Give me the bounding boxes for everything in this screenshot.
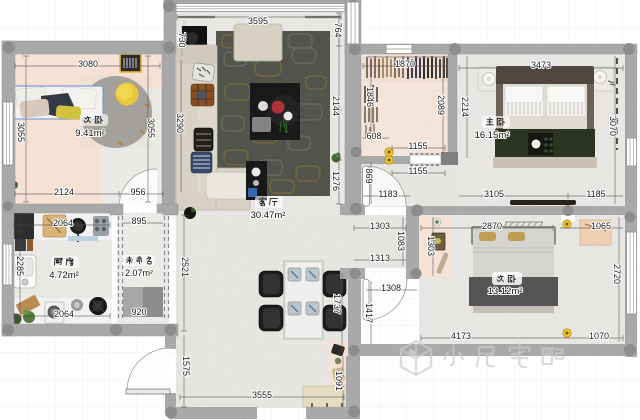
svg-text:3055: 3055: [16, 122, 26, 142]
svg-text:1155: 1155: [408, 141, 427, 151]
svg-text:869: 869: [364, 168, 374, 183]
svg-text:1185: 1185: [586, 189, 605, 199]
svg-text:2.07m²: 2.07m²: [125, 268, 153, 278]
svg-text:1313: 1313: [370, 253, 390, 263]
svg-text:1846: 1846: [365, 87, 375, 107]
svg-text:2720: 2720: [612, 264, 622, 284]
svg-text:730: 730: [177, 32, 187, 47]
svg-text:1417: 1417: [364, 303, 374, 323]
svg-text:895: 895: [131, 216, 146, 226]
svg-text:1083: 1083: [396, 231, 406, 251]
svg-text:3080: 3080: [78, 59, 98, 69]
svg-text:1091: 1091: [334, 371, 344, 391]
svg-text:3055: 3055: [146, 118, 156, 138]
svg-text:4173: 4173: [451, 331, 471, 341]
svg-text:2285: 2285: [15, 256, 25, 276]
svg-text:1870: 1870: [395, 59, 415, 69]
svg-text:1183: 1183: [378, 189, 397, 199]
svg-text:608: 608: [366, 131, 381, 141]
svg-text:3555: 3555: [252, 390, 272, 400]
svg-text:1303: 1303: [426, 236, 436, 256]
svg-text:2124: 2124: [54, 187, 74, 197]
svg-text:1065: 1065: [591, 221, 611, 231]
svg-text:1737: 1737: [332, 294, 342, 314]
svg-text:920: 920: [131, 307, 146, 317]
svg-text:2870: 2870: [482, 221, 502, 231]
svg-text:2064: 2064: [54, 309, 74, 319]
svg-text:16.15m²: 16.15m²: [475, 130, 510, 141]
svg-text:1308: 1308: [381, 283, 401, 293]
svg-text:30.47m²: 30.47m²: [251, 210, 286, 221]
svg-text:1070: 1070: [589, 331, 609, 341]
svg-text:2089: 2089: [436, 95, 446, 115]
svg-text:3290: 3290: [175, 113, 185, 133]
svg-text:1575: 1575: [181, 356, 191, 376]
svg-text:1155: 1155: [408, 166, 427, 176]
svg-text:4.72m²: 4.72m²: [49, 270, 79, 281]
svg-text:1276: 1276: [331, 171, 341, 191]
svg-text:13.12m²: 13.12m²: [488, 286, 523, 297]
svg-text:764: 764: [333, 22, 343, 37]
svg-text:9.41m²: 9.41m²: [75, 128, 105, 139]
svg-text:956: 956: [130, 187, 145, 197]
svg-text:2521: 2521: [180, 257, 190, 277]
svg-text:2064: 2064: [53, 218, 73, 228]
svg-text:2214: 2214: [460, 97, 470, 117]
svg-text:2144: 2144: [331, 96, 341, 116]
svg-text:3105: 3105: [484, 189, 504, 199]
svg-text:3595: 3595: [248, 16, 268, 26]
svg-text:1303: 1303: [370, 221, 390, 231]
svg-text:3070: 3070: [608, 116, 618, 136]
svg-text:3473: 3473: [531, 60, 551, 70]
